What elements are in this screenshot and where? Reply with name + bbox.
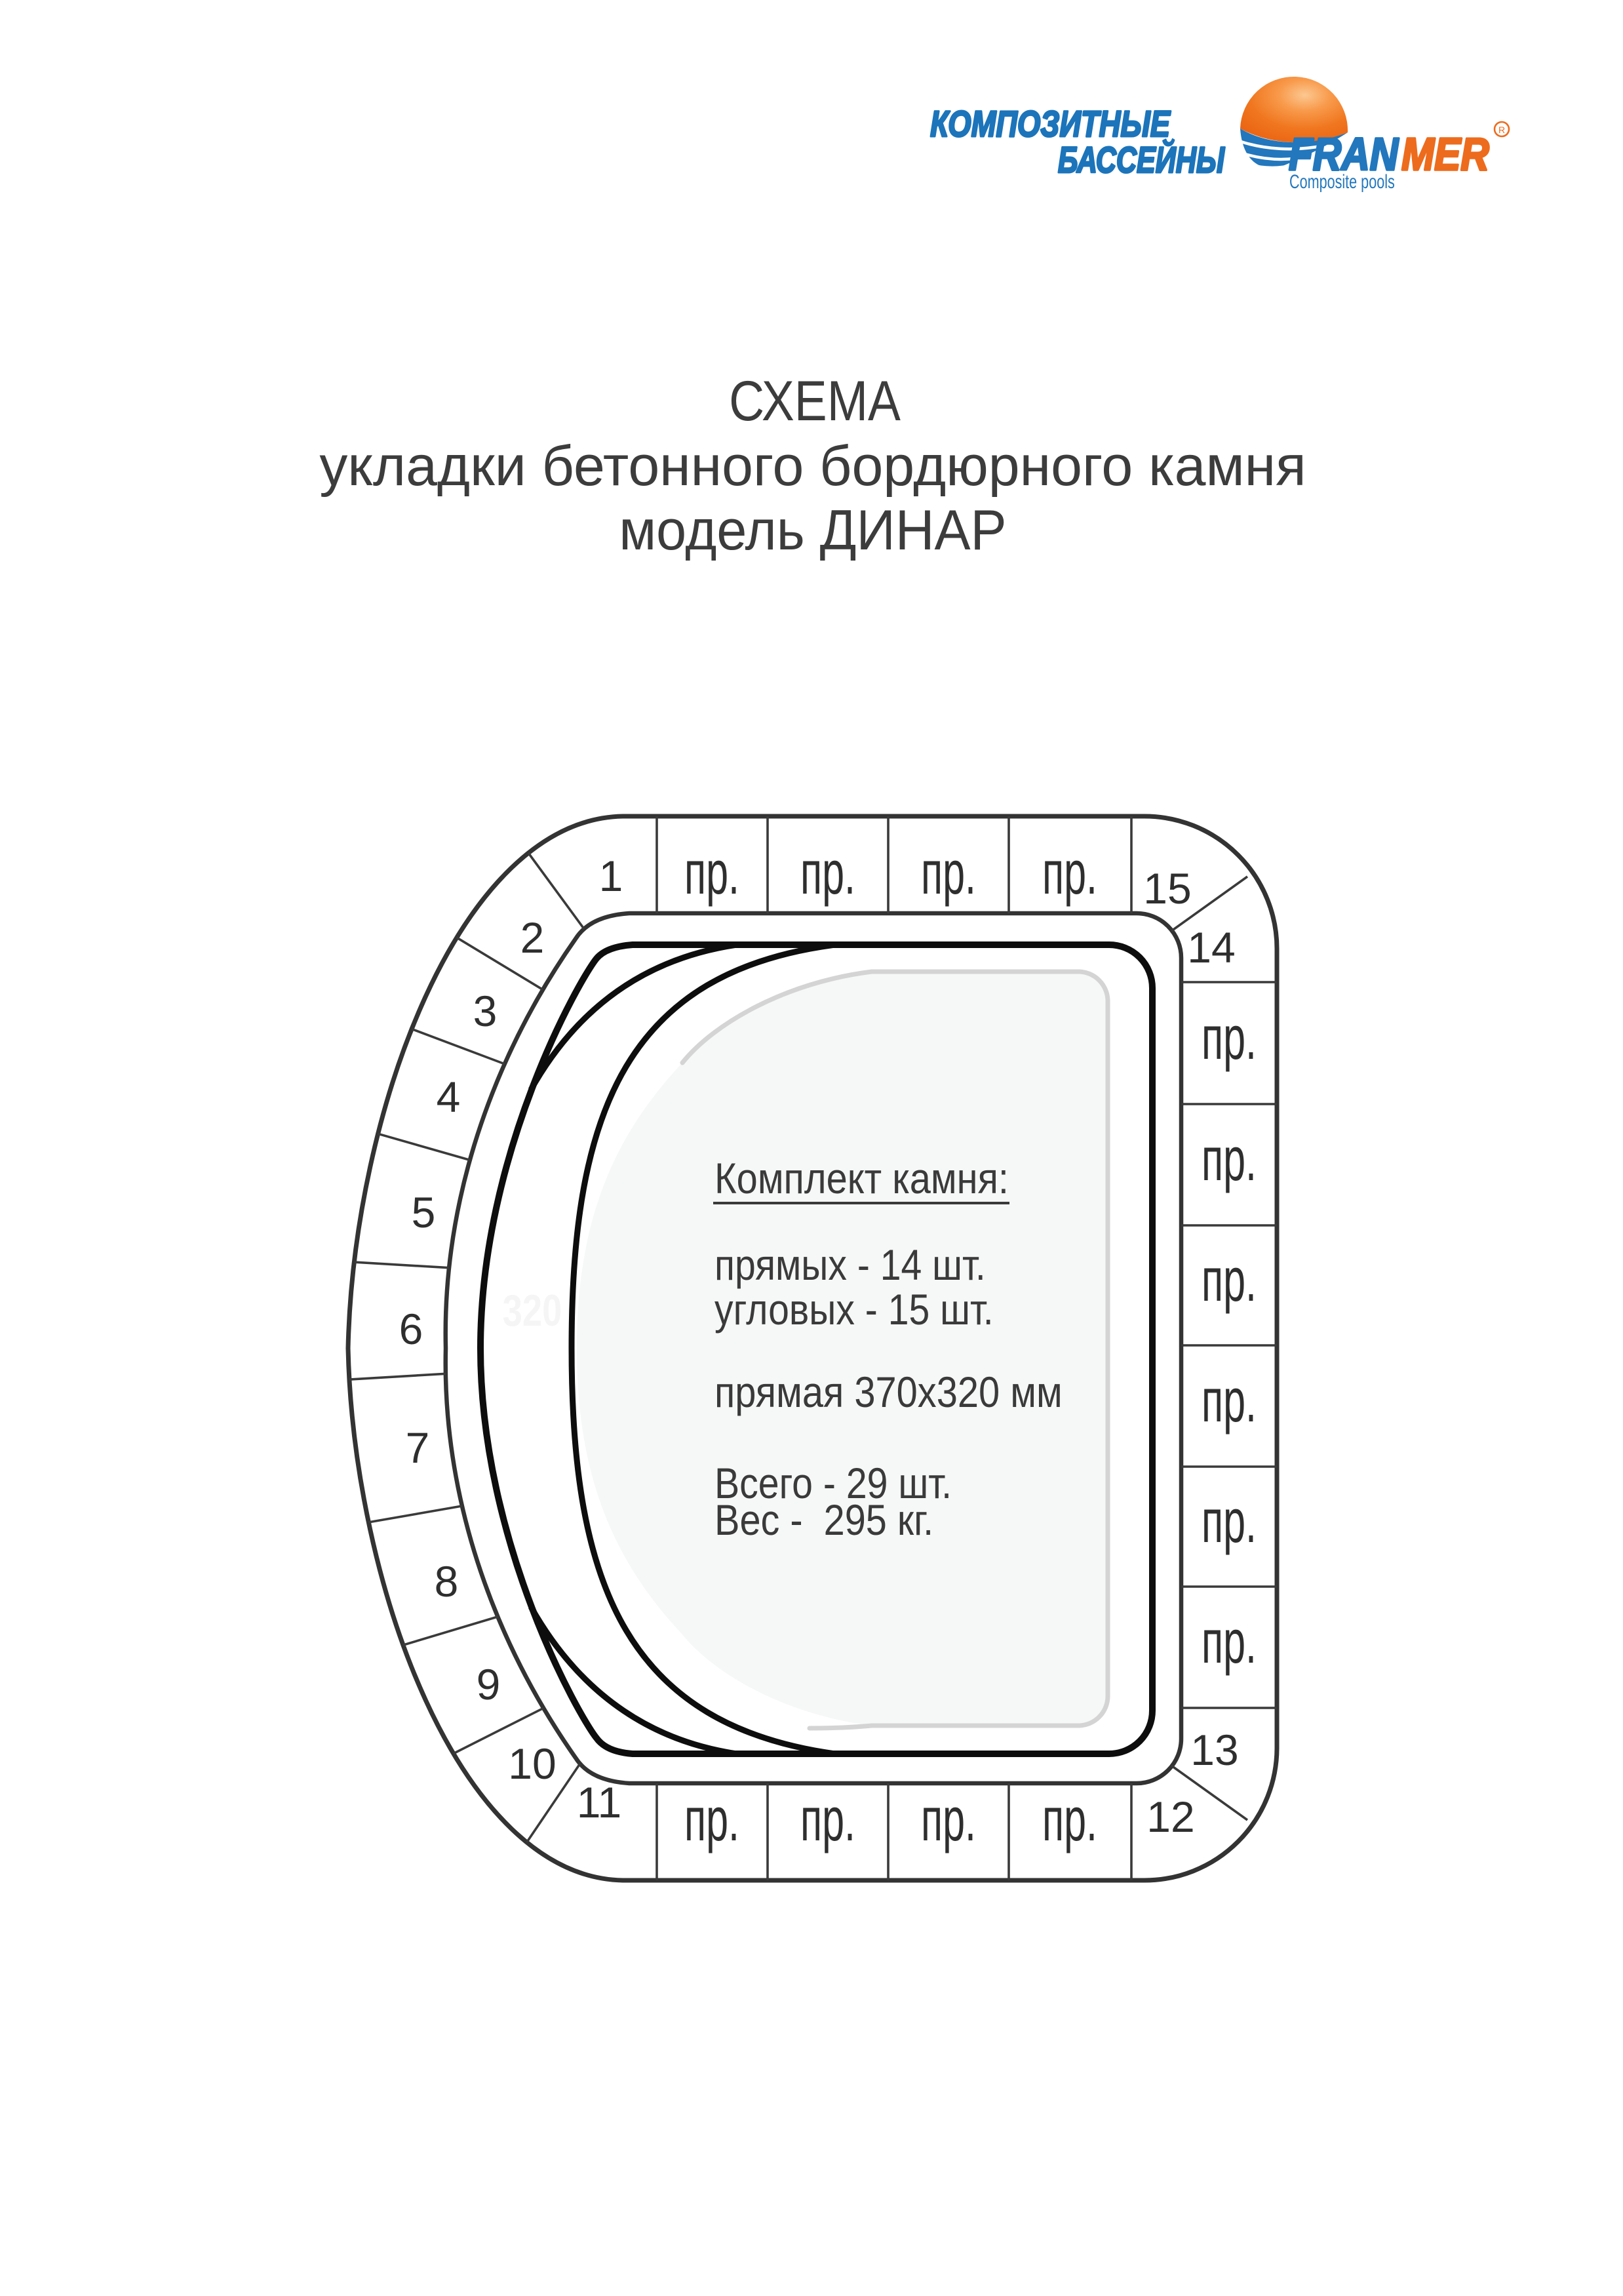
svg-text:9: 9 [477, 1660, 501, 1709]
svg-text:13: 13 [1190, 1726, 1238, 1774]
svg-text:пр.: пр. [1042, 838, 1097, 907]
svg-text:320: 320 [503, 1286, 562, 1336]
svg-text:4: 4 [437, 1073, 461, 1121]
svg-text:пр.: пр. [1202, 1607, 1257, 1676]
svg-text:БАССЕЙНЫ: БАССЕЙНЫ [1058, 138, 1225, 180]
svg-text:модель ДИНАР: модель ДИНАР [619, 498, 1006, 561]
svg-text:3: 3 [473, 987, 498, 1035]
svg-text:СХЕМА: СХЕМА [729, 370, 901, 433]
svg-text:пр.: пр. [1202, 1245, 1257, 1315]
svg-text:пр.: пр. [800, 838, 855, 907]
svg-text:пр.: пр. [800, 1785, 855, 1854]
svg-text:пр.: пр. [1202, 1124, 1257, 1194]
svg-text:11: 11 [577, 1778, 622, 1827]
svg-text:пр.: пр. [684, 838, 739, 907]
svg-text:пр.: пр. [1042, 1785, 1097, 1854]
svg-text:2: 2 [520, 913, 545, 962]
svg-text:пр.: пр. [1202, 1366, 1257, 1435]
svg-text:КОМПОЗИТНЫЕ: КОМПОЗИТНЫЕ [930, 103, 1171, 144]
svg-text:14: 14 [1187, 923, 1235, 972]
svg-text:укладки бетонного бордюрного к: укладки бетонного бордюрного камня [319, 435, 1306, 498]
svg-text:Вес - 295 кг.: Вес - 295 кг. [714, 1496, 933, 1544]
svg-text:прямых - 14 шт.: прямых - 14 шт. [714, 1241, 986, 1290]
svg-text:MER: MER [1401, 129, 1489, 180]
svg-text:12: 12 [1146, 1792, 1194, 1841]
svg-text:8: 8 [435, 1557, 459, 1606]
svg-text:15: 15 [1143, 864, 1191, 913]
svg-text:7: 7 [406, 1423, 430, 1472]
svg-text:прямая 370х320 мм: прямая 370х320 мм [714, 1368, 1063, 1416]
svg-text:пр.: пр. [1202, 1003, 1257, 1073]
svg-text:1: 1 [599, 852, 623, 900]
svg-text:пр.: пр. [684, 1785, 739, 1854]
svg-text:5: 5 [412, 1188, 436, 1237]
svg-text:пр.: пр. [921, 1785, 976, 1854]
svg-text:пр.: пр. [1202, 1486, 1257, 1556]
svg-text:угловых - 15 шт.: угловых - 15 шт. [714, 1286, 994, 1334]
svg-text:R: R [1498, 125, 1505, 135]
svg-text:Комплект камня:: Комплект камня: [714, 1155, 1009, 1202]
svg-text:10: 10 [508, 1739, 556, 1788]
svg-text:пр.: пр. [921, 838, 976, 907]
svg-text:6: 6 [399, 1305, 423, 1353]
svg-text:Composite pools: Composite pools [1289, 170, 1395, 192]
